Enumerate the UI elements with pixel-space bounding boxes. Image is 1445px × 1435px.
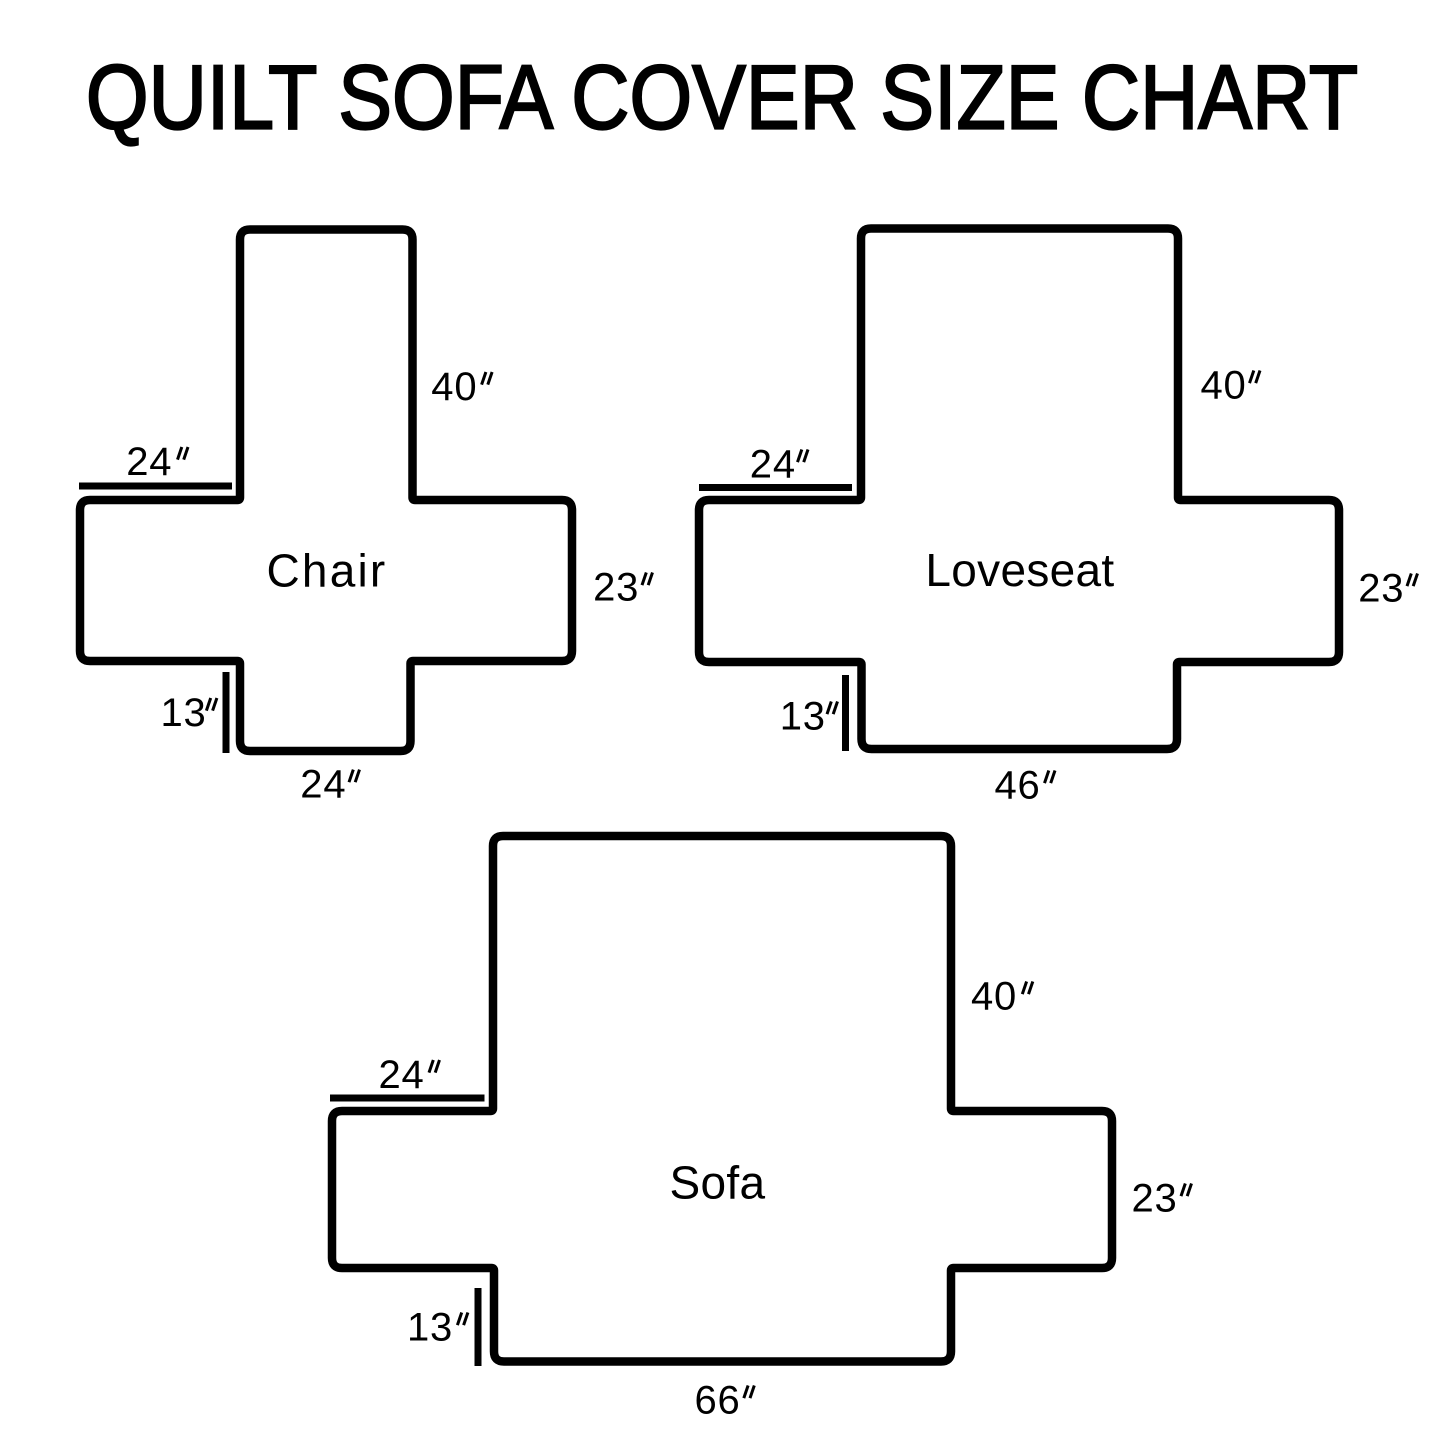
svg-text:40: 40 (971, 975, 1017, 1019)
svg-text:13: 13 (780, 695, 826, 739)
svg-text:24: 24 (750, 443, 796, 487)
svg-text:Sofa: Sofa (670, 1157, 766, 1209)
svg-text:24: 24 (300, 763, 346, 807)
svg-text:Loveseat: Loveseat (925, 544, 1114, 596)
svg-text:23: 23 (593, 566, 639, 610)
svg-text:13: 13 (161, 691, 207, 735)
svg-text:23: 23 (1132, 1177, 1178, 1221)
svg-text:66: 66 (695, 1379, 741, 1423)
svg-text:24: 24 (379, 1053, 425, 1097)
svg-text:23: 23 (1358, 567, 1404, 611)
svg-text:46: 46 (995, 764, 1041, 808)
svg-text:QUILT SOFA COVER SIZE CHART: QUILT SOFA COVER SIZE CHART (86, 47, 1358, 149)
svg-text:40: 40 (431, 365, 477, 409)
svg-text:24: 24 (126, 440, 172, 484)
svg-text:40: 40 (1201, 364, 1247, 408)
svg-text:Chair: Chair (267, 544, 388, 596)
svg-text:13: 13 (407, 1306, 453, 1350)
